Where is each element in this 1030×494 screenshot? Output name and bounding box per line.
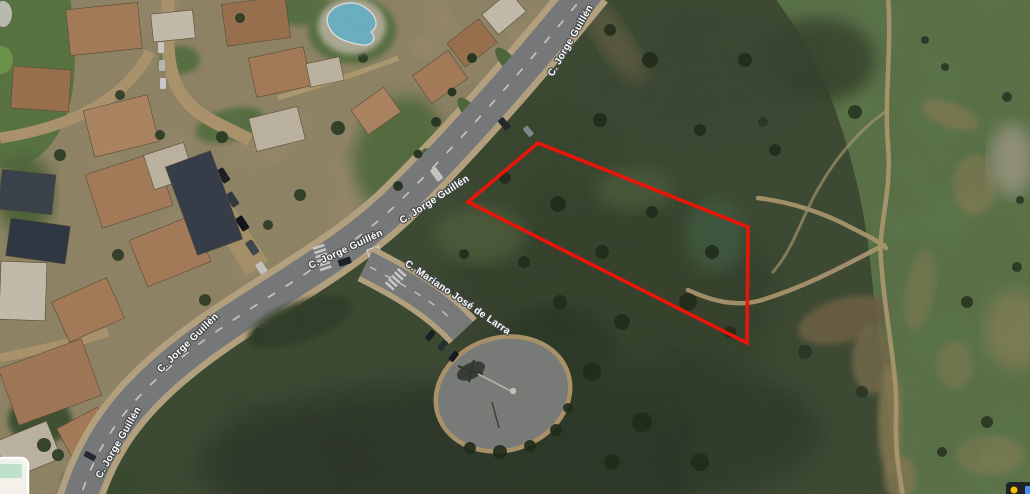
- inset-map-content: [0, 479, 24, 494]
- inset-map-thumbnail[interactable]: [0, 458, 28, 494]
- pegman-icon[interactable]: [1011, 487, 1018, 494]
- satellite-map-canvas[interactable]: C. Jorge Guillén C. Jorge Guillén C. Jor…: [0, 0, 1030, 494]
- satellite-grain-texture: [0, 0, 1030, 494]
- map-control-corner[interactable]: [1006, 482, 1030, 494]
- map-viewport[interactable]: C. Jorge Guillén C. Jorge Guillén C. Jor…: [0, 0, 1030, 494]
- inset-map-content: [0, 464, 22, 478]
- map-control-button[interactable]: [1025, 486, 1030, 494]
